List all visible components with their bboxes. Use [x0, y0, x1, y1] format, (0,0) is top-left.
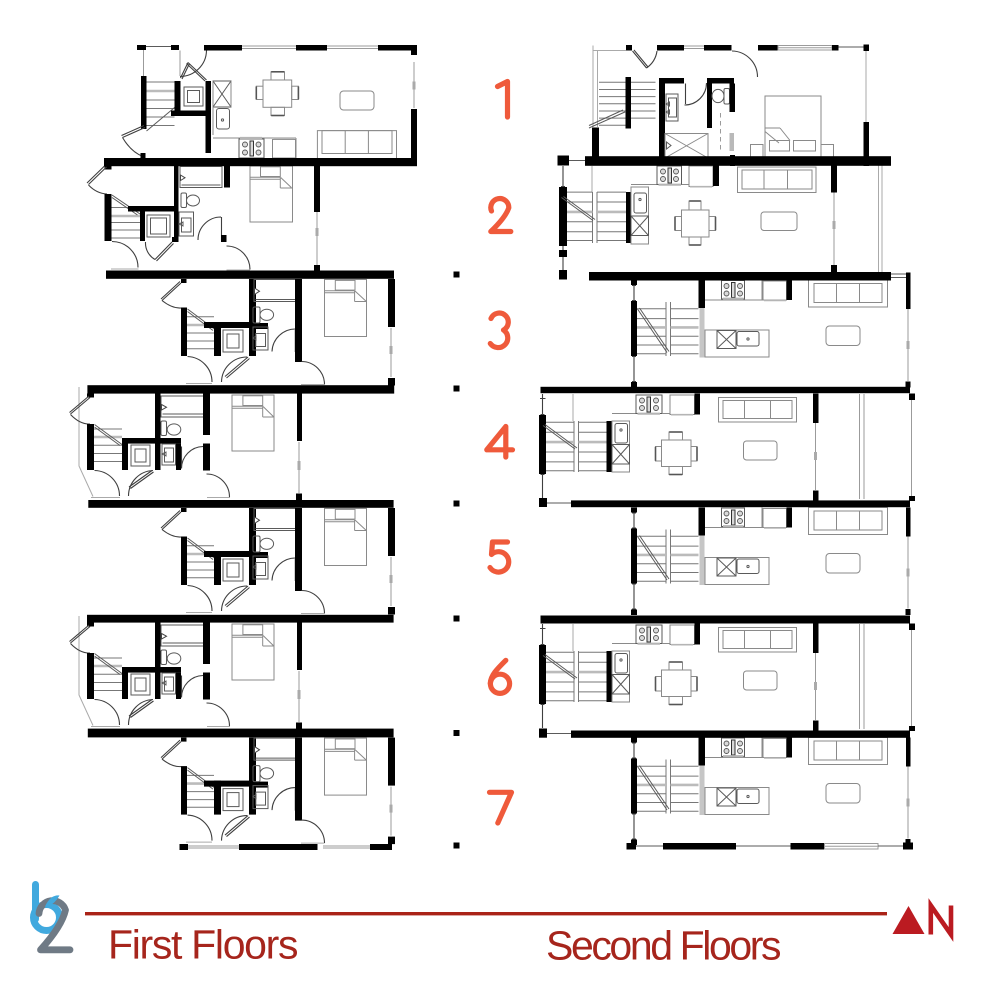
- svg-text:First Floors: First Floors: [108, 922, 299, 968]
- svg-text:Second Floors: Second Floors: [546, 923, 782, 969]
